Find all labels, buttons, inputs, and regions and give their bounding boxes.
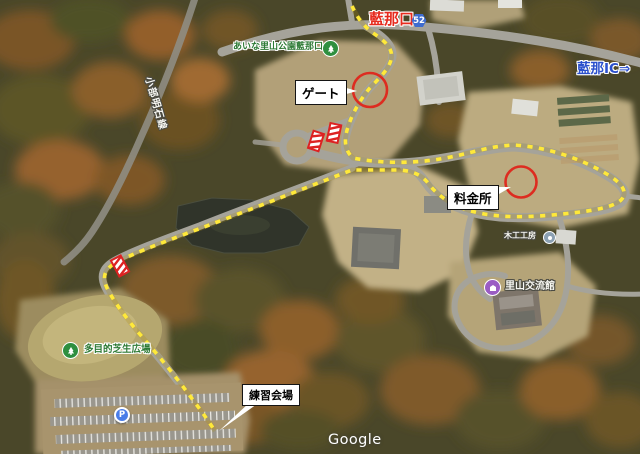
google-watermark: Google — [328, 433, 382, 448]
exchange-hall-label[interactable]: 里山交流館 — [505, 282, 555, 292]
gate-callout: ゲート — [295, 80, 347, 105]
building-icon — [488, 283, 498, 293]
park-icon[interactable] — [322, 40, 339, 57]
parking-letter: P — [116, 409, 128, 421]
workshop-poi-icon[interactable] — [543, 231, 556, 244]
workshop-label[interactable]: 木工工房 — [504, 232, 536, 240]
interchange-label: 藍那IC⇒ — [577, 63, 630, 77]
lawn-plaza-icon[interactable] — [62, 342, 79, 359]
satellite-imagery — [0, 0, 640, 454]
parking-lot — [41, 382, 243, 454]
parking-icon[interactable]: P — [114, 407, 130, 423]
road-barrier-icon — [327, 123, 342, 143]
tree-icon — [326, 44, 336, 54]
practice-venue-callout: 練習会場 — [242, 384, 300, 406]
tree-icon — [66, 346, 76, 356]
dot-icon — [548, 236, 552, 240]
roundabout — [283, 133, 311, 161]
park-entrance-label[interactable]: あいな里山公園藍那口 — [233, 43, 323, 52]
lawn-plaza-label[interactable]: 多目的芝生広場 — [84, 345, 151, 355]
toll-booth-callout: 料金所 — [447, 185, 499, 210]
entrance-name-label: 藍那口 — [369, 12, 414, 27]
satellite-map[interactable]: 藍那口 52 あいな里山公園藍那口 小部明石線 藍那IC⇒ ゲート 料金所 練習… — [0, 0, 640, 454]
exchange-hall-icon[interactable] — [484, 279, 501, 296]
